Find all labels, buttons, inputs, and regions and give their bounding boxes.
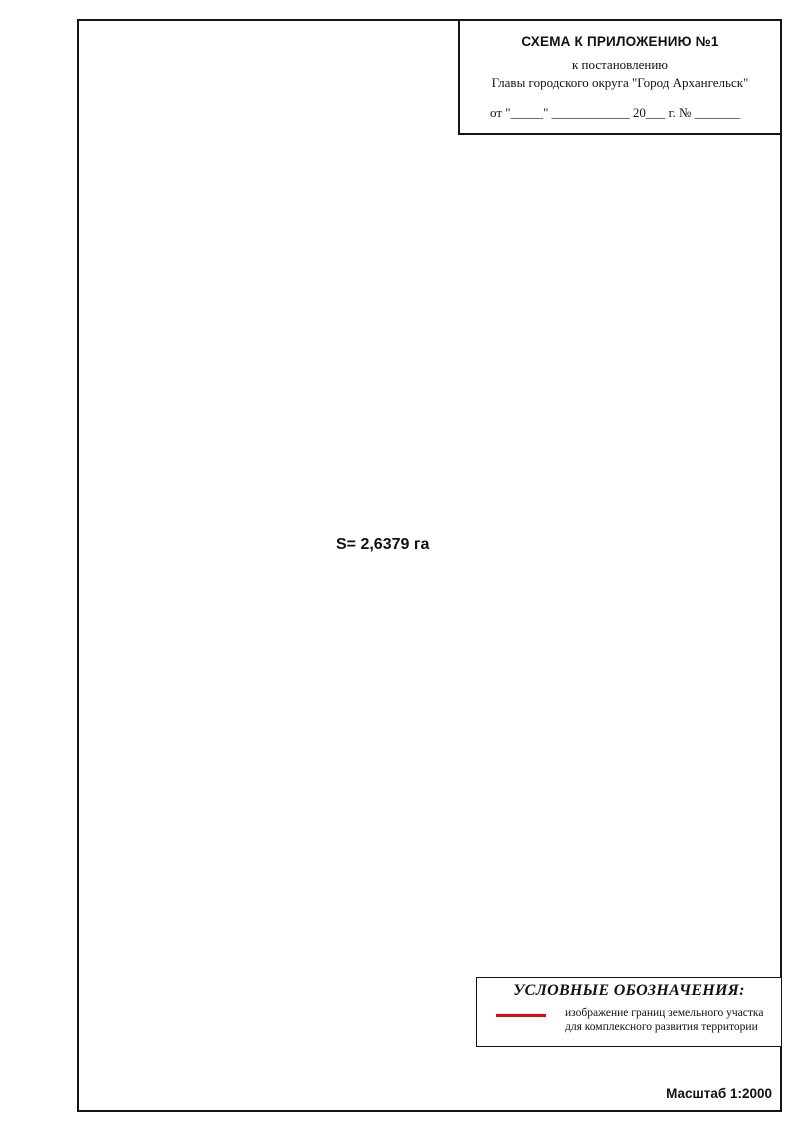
map-border-frame: [77, 19, 782, 1112]
boundary-line-sample-icon: [496, 1014, 546, 1017]
legend-item-text: изображение границ земельного участка дл…: [565, 1006, 781, 1034]
title-line-3: Главы городского округа "Город Архангель…: [460, 75, 780, 91]
title-block: СХЕМА К ПРИЛОЖЕНИЮ №1 к постановлению Гл…: [458, 19, 782, 135]
legend-item-text-line1: изображение границ земельного участка: [565, 1006, 781, 1020]
parcel-area-label: S= 2,6379 га: [336, 536, 429, 554]
title-line-2: к постановлению: [460, 57, 780, 73]
title-date-number-line: от "_____" ____________ 20___ г. № _____…: [460, 105, 780, 121]
page: 14121210111315171616к.117к.1131511976587…: [0, 0, 800, 1131]
legend-item: изображение границ земельного участка дл…: [477, 1006, 781, 1034]
legend-title: УСЛОВНЫЕ ОБОЗНАЧЕНИЯ:: [477, 982, 781, 1000]
scale-label: Масштаб 1:2000: [666, 1086, 772, 1101]
legend-box: УСЛОВНЫЕ ОБОЗНАЧЕНИЯ: изображение границ…: [476, 977, 782, 1047]
title-line-1: СХЕМА К ПРИЛОЖЕНИЮ №1: [460, 34, 780, 49]
legend-item-text-line2: для комплексного развития территории: [565, 1020, 781, 1034]
